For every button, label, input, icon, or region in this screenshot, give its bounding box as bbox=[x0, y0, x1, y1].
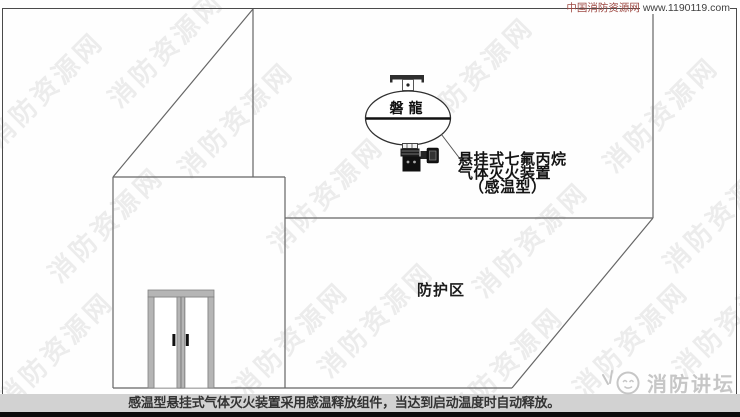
logo-hand-stroke-2 bbox=[610, 371, 612, 383]
site-credit: 中国消防资源网www.1190119.com bbox=[566, 2, 730, 15]
forum-logo: 消防讲坛 bbox=[599, 368, 739, 396]
site-credit-name: 中国消防资源网 bbox=[566, 2, 640, 14]
door-meeting-stile-left bbox=[177, 297, 181, 388]
door-frame-right-jamb bbox=[208, 297, 214, 388]
module-indicator-right bbox=[413, 161, 416, 164]
device-label-line3: （感温型） bbox=[458, 181, 567, 195]
mount-plate-end-left bbox=[390, 80, 393, 83]
logo-hand-stroke-1 bbox=[603, 375, 608, 384]
module-indicator-left bbox=[407, 161, 410, 164]
ceiling-mount-plate bbox=[390, 75, 424, 80]
release-module-box bbox=[403, 157, 421, 172]
diagram-page: 消防资源网消防资源网消防资源网消防资源网消防资源网消防资源网消防资源网消防资源网… bbox=[0, 0, 740, 417]
side-connector bbox=[421, 151, 428, 159]
suspended-extinguisher-device bbox=[366, 75, 463, 172]
double-door bbox=[148, 290, 214, 388]
door-frame-header bbox=[148, 290, 214, 297]
logo-face-circle bbox=[618, 373, 639, 394]
device-callout-label: 悬挂式七氟丙烷 气体灭火装置 （感温型） bbox=[458, 153, 567, 195]
protection-zone-label: 防护区 bbox=[417, 279, 465, 300]
thermal-bulb-window bbox=[430, 151, 437, 160]
door-handle-right bbox=[186, 334, 189, 346]
site-credit-url: www.1190119.com bbox=[640, 2, 730, 14]
smiley-face-logo-icon bbox=[599, 367, 643, 397]
room-line-drawing bbox=[0, 0, 740, 417]
hanger-bolt bbox=[406, 83, 409, 86]
door-meeting-stile-right bbox=[181, 297, 185, 388]
forum-logo-text: 消防讲坛 bbox=[647, 368, 735, 397]
mount-plate-end-right bbox=[422, 80, 425, 83]
device-brand-text: 磐龍 bbox=[366, 98, 451, 118]
roof-diagonal-left bbox=[113, 9, 253, 177]
door-handle-left bbox=[172, 334, 175, 346]
nozzle-collar bbox=[403, 144, 418, 149]
floor-diagonal-right bbox=[512, 218, 653, 388]
bottom-black-bar bbox=[0, 412, 740, 417]
door-frame-left-jamb bbox=[148, 297, 154, 388]
valve-body bbox=[401, 149, 420, 157]
